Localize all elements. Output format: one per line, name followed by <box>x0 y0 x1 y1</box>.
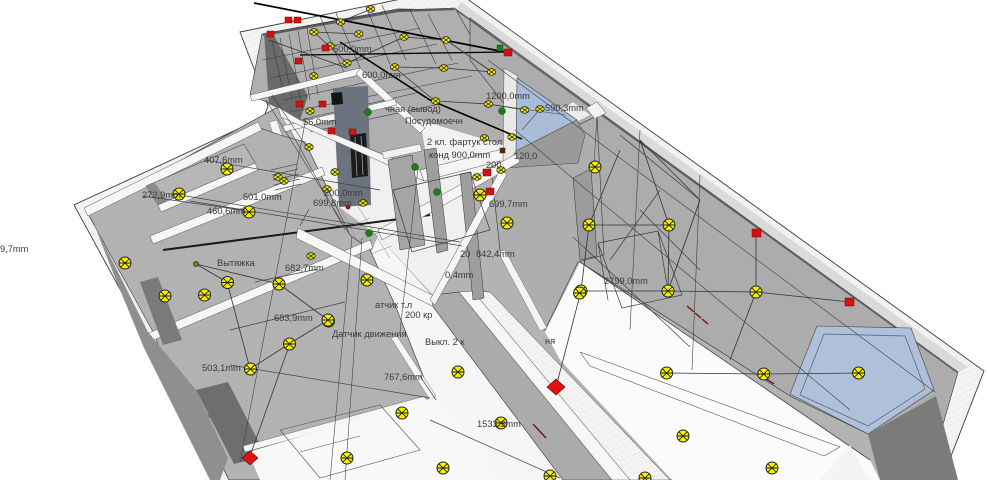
svg-text:Вытяжка: Вытяжка <box>217 258 256 268</box>
svg-text:407,6mm: 407,6mm <box>204 155 243 165</box>
svg-text:200,0mm: 200,0mm <box>324 188 363 198</box>
svg-text:чная (вывод): чная (вывод) <box>385 104 441 114</box>
svg-text:590,3mm: 590,3mm <box>545 103 584 113</box>
svg-text:2799,0mm: 2799,0mm <box>604 276 648 286</box>
svg-text:200 кр: 200 кр <box>405 310 432 320</box>
svg-text:ня: ня <box>545 336 555 346</box>
svg-text:503,1mm: 503,1mm <box>202 363 241 373</box>
svg-text:699,7mm: 699,7mm <box>489 199 528 209</box>
svg-text:120,0: 120,0 <box>514 151 537 161</box>
svg-text:1200,0mm: 1200,0mm <box>486 91 530 101</box>
svg-text:атчик т.л: атчик т.л <box>375 300 412 310</box>
svg-text:1533,3mm: 1533,3mm <box>477 419 521 429</box>
svg-text:Посудомоечн: Посудомоечн <box>405 116 463 126</box>
svg-text:500,0mm: 500,0mm <box>333 44 372 54</box>
svg-text:767,6mm: 767,6mm <box>384 372 423 382</box>
svg-text:2 кл. фартук стол: 2 кл. фартук стол <box>427 137 502 147</box>
svg-text:682,7mm: 682,7mm <box>285 263 324 273</box>
svg-text:699,8mm: 699,8mm <box>313 198 352 208</box>
svg-text:Выкл. 2 к: Выкл. 2 к <box>425 337 465 347</box>
svg-text:9,7mm: 9,7mm <box>0 244 29 254</box>
svg-text:56,0mm: 56,0mm <box>303 117 337 127</box>
svg-text:200: 200 <box>486 160 502 170</box>
svg-text:683,9mm: 683,9mm <box>274 313 313 323</box>
svg-text:272,9mm: 272,9mm <box>142 190 181 200</box>
svg-text:конд 900,0mm: конд 900,0mm <box>429 150 490 160</box>
svg-text:20: 20 <box>460 249 470 259</box>
svg-text:Датчик движения: Датчик движения <box>332 329 407 339</box>
svg-text:0,4mm: 0,4mm <box>445 270 474 280</box>
svg-text:460,6mm: 460,6mm <box>207 206 246 216</box>
svg-text:501,0mm: 501,0mm <box>243 192 282 202</box>
svg-text:842,4mm: 842,4mm <box>476 249 515 259</box>
svg-text:600,0mm: 600,0mm <box>362 70 401 80</box>
